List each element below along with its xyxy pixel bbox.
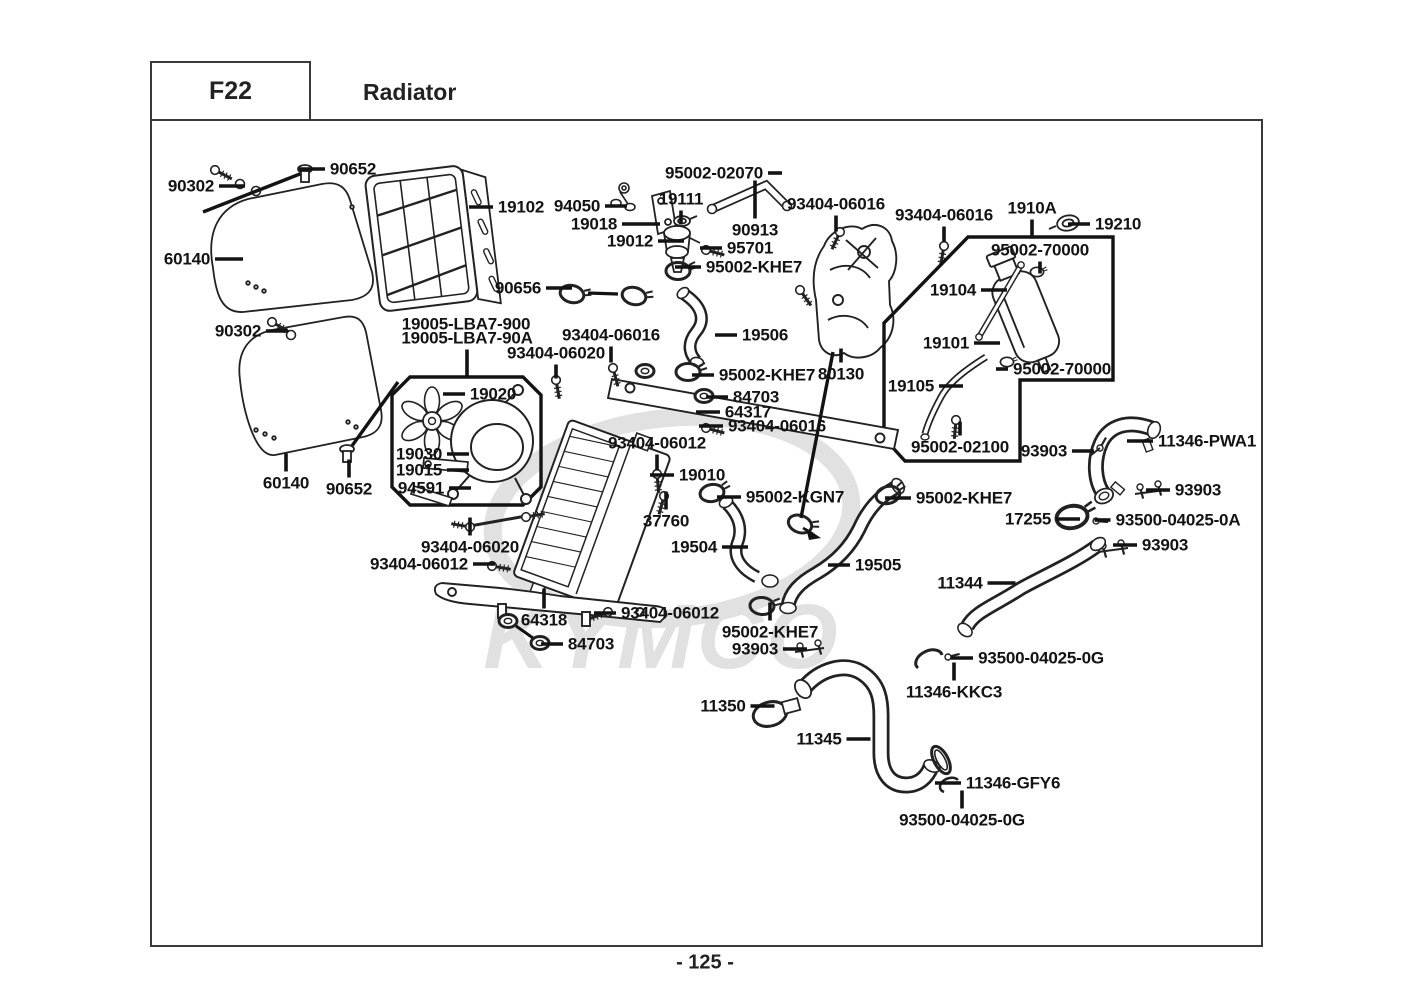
part-label-19020: 19020 (470, 386, 516, 403)
part-label-93404-06016: 93404-06016 (562, 327, 660, 344)
part-label-93404-06016: 93404-06016 (895, 207, 993, 224)
part-label-95002-kgn7: 95002-KGN7 (746, 489, 844, 506)
part-label-93404-06012: 93404-06012 (621, 605, 719, 622)
part-label-95002-khe7: 95002-KHE7 (719, 367, 815, 384)
part-label-94050: 94050 (554, 198, 600, 215)
part-label-95701: 95701 (727, 240, 773, 257)
part-label-19111: 19111 (659, 191, 703, 208)
part-label-93404-06016: 93404-06016 (787, 196, 885, 213)
part-label-60140: 60140 (164, 251, 210, 268)
part-label-80130: 80130 (818, 366, 864, 383)
part-label-95002-02070: 95002-02070 (665, 165, 763, 182)
part-label-90302: 90302 (215, 323, 261, 340)
part-label-93903: 93903 (1021, 443, 1067, 460)
part-label-90652: 90652 (330, 161, 376, 178)
part-label-60140: 60140 (263, 475, 309, 492)
part-label-19012: 19012 (607, 233, 653, 250)
page-number: - 125 - (676, 952, 734, 975)
part-label-93404-06012: 93404-06012 (608, 435, 706, 452)
part-label-93903: 93903 (732, 641, 778, 658)
part-label-11344: 11344 (937, 575, 982, 592)
part-label-19102: 19102 (498, 199, 544, 216)
part-label-93500-04025-0g: 93500-04025-0G (978, 650, 1104, 667)
part-label-93500-04025-0a: 93500-04025-0A (1116, 512, 1241, 529)
part-label-37760: 37760 (643, 513, 689, 530)
part-label-84703: 84703 (568, 636, 614, 653)
part-label-93903: 93903 (1175, 482, 1221, 499)
part-label-95002-khe7: 95002-KHE7 (722, 624, 818, 641)
part-label-93500-04025-0g: 93500-04025-0G (899, 812, 1025, 829)
part-label-11346-pwa1: 11346-PWA1 (1158, 433, 1256, 450)
part-label-11346-kkc3: 11346-KKC3 (906, 684, 1002, 701)
part-label-93404-06020: 93404-06020 (507, 345, 605, 362)
part-label-11346-gfy6: 11346-GFY6 (966, 775, 1060, 792)
part-label-19506: 19506 (742, 327, 788, 344)
part-label-11345: 11345 (796, 731, 841, 748)
part-label-93903: 93903 (1142, 537, 1188, 554)
labels-layer: 9030290652601401910294050190181901219111… (0, 0, 1415, 1000)
part-label-1910a: 1910A (1007, 200, 1056, 217)
part-label-95002-70000: 95002-70000 (1013, 361, 1111, 378)
part-label-19505: 19505 (855, 557, 901, 574)
part-label-90302: 90302 (168, 178, 214, 195)
part-label-95002-khe7: 95002-KHE7 (916, 490, 1012, 507)
part-label-90913: 90913 (732, 222, 778, 239)
catalog-page: KYMCO F22 Radiator (0, 0, 1415, 1000)
part-label-64318: 64318 (521, 612, 567, 629)
part-label-19210: 19210 (1095, 216, 1141, 233)
part-label-90652: 90652 (326, 481, 372, 498)
part-label-19018: 19018 (571, 216, 617, 233)
part-label-19010: 19010 (679, 467, 725, 484)
part-label-93404-06012: 93404-06012 (370, 556, 468, 573)
part-label-17255: 17255 (1005, 511, 1051, 528)
part-label-11350: 11350 (700, 698, 745, 715)
part-label-90656: 90656 (495, 280, 541, 297)
part-label-95002-khe7: 95002-KHE7 (706, 259, 802, 276)
part-label-93404-06020: 93404-06020 (421, 539, 519, 556)
part-label-19101: 19101 (923, 335, 969, 352)
part-label-19015: 19015 (396, 462, 442, 479)
part-label-94591: 94591 (398, 480, 444, 497)
part-label-95002-70000: 95002-70000 (991, 242, 1089, 259)
part-label-19105: 19105 (888, 378, 934, 395)
part-label-95002-02100: 95002-02100 (911, 439, 1009, 456)
part-label-93404-06016: 93404-06016 (728, 418, 826, 435)
part-label-19104: 19104 (930, 282, 976, 299)
part-label-19504: 19504 (671, 539, 717, 556)
